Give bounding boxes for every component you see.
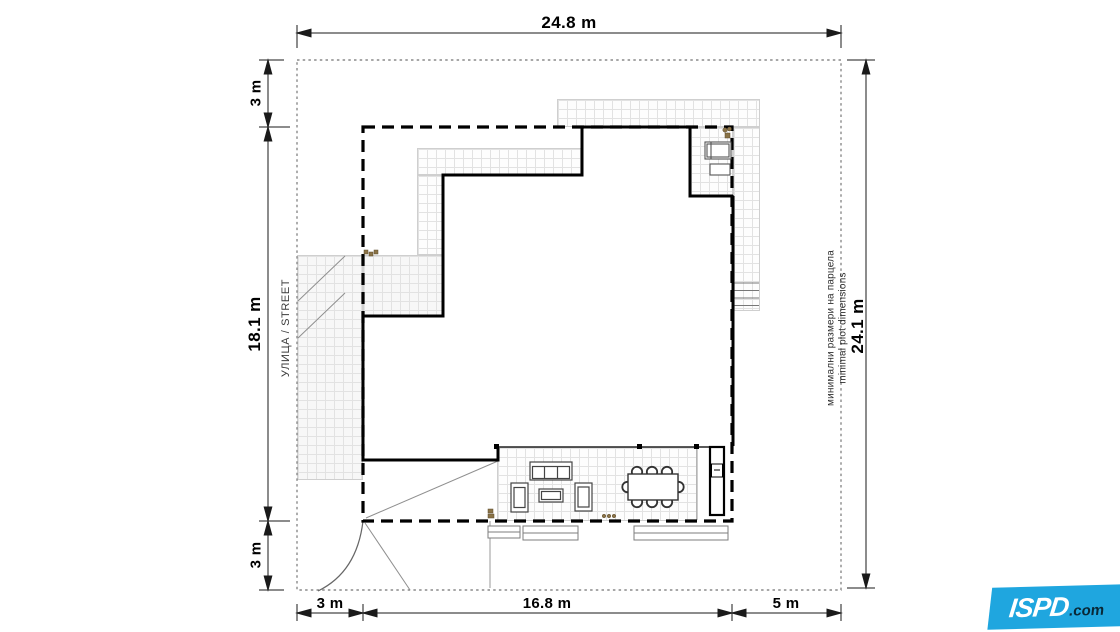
plot-note-bulgarian: минимални размери на парцела [826,250,837,406]
utility-block [710,447,724,515]
ispd-logo-suffix: .com [1068,602,1105,618]
dimension-label-bottom-setback-left: 3 m [317,595,344,612]
dimension-label-top-width: 24.8 m [541,13,596,33]
dining-set [622,467,683,507]
plot-boundary [297,60,841,590]
site-plan-canvas: 24.8 m 3 m 18.1 m 3 m УЛИЦА / STREET 3 m… [0,0,1120,632]
dimension-label-bottom-house-width: 16.8 m [523,595,572,612]
dimension-label-left-plot-depth: 18.1 m [245,296,265,351]
ispd-logo-brand: ISPD [1008,593,1070,622]
site-plan-drawing [0,0,1120,632]
steps-bottom [488,526,728,540]
house-outline [363,127,733,460]
site-lines [298,256,697,591]
sofa-set [511,462,592,512]
dimension-label-left-setback-bottom: 3 m [248,542,265,569]
lounger-set [705,142,731,175]
dining-table [628,474,678,500]
bench [710,164,730,175]
dimension-label-bottom-setback-right: 5 m [773,595,800,612]
street-label: УЛИЦА / STREET [280,279,292,377]
plot-note-english: minimal plot dimensions [838,272,849,383]
ispd-logo[interactable]: ISPD.com [987,584,1120,629]
dimension-label-right-plot-height: 24.1 m [848,298,868,353]
driveway-curve [318,521,363,591]
dimension-label-left-setback-top: 3 m [248,80,265,107]
steps-right [733,283,759,306]
